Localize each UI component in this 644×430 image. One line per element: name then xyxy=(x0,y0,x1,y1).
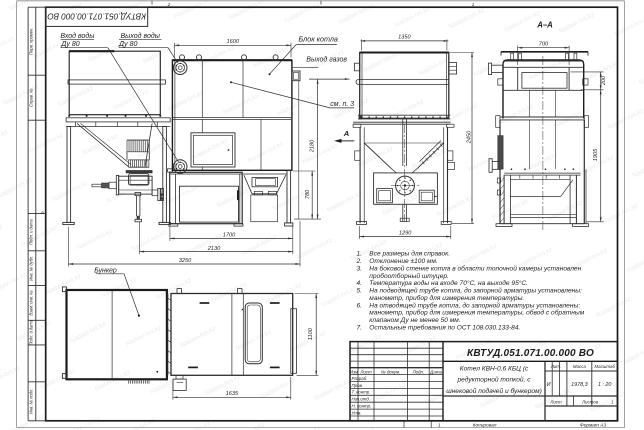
svg-text:Температура воды на входе 70°С: Температура воды на входе 70°С, на выход… xyxy=(369,279,528,287)
svg-text:Листов: Листов xyxy=(581,400,599,405)
svg-text:Лист: Лист xyxy=(359,369,372,374)
svg-text:1: 1 xyxy=(472,2,475,7)
svg-text:Масштаб: Масштаб xyxy=(594,364,615,369)
svg-text:Лист: Лист xyxy=(549,400,562,405)
svg-text:1905: 1905 xyxy=(593,148,599,161)
svg-text:Подп. и дата: Подп. и дата xyxy=(29,219,34,245)
svg-text:Взам. инв. №: Взам. инв. № xyxy=(29,290,34,316)
svg-text:1100: 1100 xyxy=(308,327,314,340)
svg-text:Блок котла: Блок котла xyxy=(299,35,338,44)
svg-text:пробоотборный штуцер.: пробоотборный штуцер. xyxy=(369,272,449,280)
svg-text:Н. контр.: Н. контр. xyxy=(352,404,372,409)
svg-text:1635: 1635 xyxy=(226,391,239,397)
svg-text:Ду 80: Ду 80 xyxy=(60,41,79,48)
svg-text:Вход воды: Вход воды xyxy=(60,32,95,40)
svg-text:А–А: А–А xyxy=(536,21,553,30)
svg-text:Дата: Дата xyxy=(429,369,442,374)
svg-text:КВТУД.051.071.00.000 ВО: КВТУД.051.071.00.000 ВО xyxy=(47,12,146,21)
svg-text:2.: 2. xyxy=(356,258,363,265)
svg-text:А: А xyxy=(40,210,44,215)
svg-text:редукторной топкой, с: редукторной топкой, с xyxy=(457,376,532,384)
svg-text:Справ. №: Справ. № xyxy=(29,88,34,107)
svg-text:Лит.: Лит. xyxy=(550,364,561,369)
svg-text:1978,3: 1978,3 xyxy=(571,382,588,388)
svg-text:Утв.: Утв. xyxy=(352,410,362,415)
svg-text:Выход воды: Выход воды xyxy=(121,32,161,40)
svg-text:Выход газов: Выход газов xyxy=(306,56,347,64)
svg-text:1: 1 xyxy=(438,422,441,427)
svg-text:Разраб.: Разраб. xyxy=(352,376,368,381)
svg-text:На боковой стенке котла в обла: На боковой стенке котла в области топочн… xyxy=(369,264,581,272)
svg-text:2130: 2130 xyxy=(207,246,221,252)
svg-text:2180: 2180 xyxy=(310,139,316,153)
svg-text:Т. контр.: Т. контр. xyxy=(352,390,371,395)
svg-text:Перв. примен.: Перв. примен. xyxy=(29,28,34,55)
svg-text:Изм: Изм xyxy=(350,369,358,374)
svg-text:1290: 1290 xyxy=(399,230,412,236)
svg-text:1.: 1. xyxy=(357,251,363,258)
svg-text:клапаном Ду не менее 50 мм.: клапаном Ду не менее 50 мм. xyxy=(369,317,461,324)
svg-text:780: 780 xyxy=(305,189,311,199)
svg-text:Бункер: Бункер xyxy=(94,267,117,274)
svg-text:Нач.отд.: Нач.отд. xyxy=(352,397,371,402)
svg-text:А: А xyxy=(343,129,349,138)
svg-text:2450: 2450 xyxy=(467,130,473,144)
svg-text:Масса: Масса xyxy=(573,364,587,369)
svg-text:Ду 80: Ду 80 xyxy=(118,41,137,48)
svg-text:Остальные требования по ОСТ 10: Остальные требования по ОСТ 108.030.133-… xyxy=(369,324,520,332)
svg-text:1350: 1350 xyxy=(398,35,411,41)
svg-text:манометр, прибор для измерения: манометр, прибор для измерения температу… xyxy=(369,309,584,317)
svg-text:3250: 3250 xyxy=(179,258,192,264)
svg-text:На подводящей трубе котла, до: На подводящей трубе котла, до запорной а… xyxy=(369,287,582,295)
svg-text:5.: 5. xyxy=(357,288,363,295)
svg-text:200: 200 xyxy=(601,75,607,86)
svg-text:1600: 1600 xyxy=(227,39,240,45)
svg-text:И: И xyxy=(547,382,551,388)
svg-text:Отклонение ±100 мм.: Отклонение ±100 мм. xyxy=(369,258,438,265)
svg-text:4.: 4. xyxy=(357,280,363,287)
svg-text:6.: 6. xyxy=(357,302,363,309)
svg-text:Котел КВН-0,6 КБЦ (с: Котел КВН-0,6 КБЦ (с xyxy=(460,365,529,372)
svg-text:КВТУД.051.071.00.000 ВО: КВТУД.051.071.00.000 ВО xyxy=(467,348,594,359)
svg-text:шнековой подачей и бункером): шнековой подачей и бункером) xyxy=(446,387,542,395)
svg-text:Подп.: Подп. xyxy=(412,369,424,374)
svg-text:1700: 1700 xyxy=(223,233,236,239)
svg-text:Формат А3: Формат А3 xyxy=(580,422,607,428)
svg-text:Инв. № дубл.: Инв. № дубл. xyxy=(29,256,34,281)
svg-text:Пров.: Пров. xyxy=(352,383,364,388)
svg-text:Копировал: Копировал xyxy=(473,422,497,428)
svg-text:манометр, прибор для измерения: манометр, прибор для измерения температу… xyxy=(369,294,524,302)
svg-text:Все размеры для справок.: Все размеры для справок. xyxy=(369,250,450,258)
svg-text:700: 700 xyxy=(539,41,549,47)
svg-text:3.: 3. xyxy=(357,265,363,272)
svg-text:Подп. и дата: Подп. и дата xyxy=(29,319,34,345)
svg-text:1 : 20: 1 : 20 xyxy=(598,382,612,388)
svg-text:№ докум.: № докум. xyxy=(381,369,400,374)
svg-text:На отводящей трубе котла, до з: На отводящей трубе котла, до запорной ар… xyxy=(369,301,580,309)
svg-text:7.: 7. xyxy=(357,325,363,332)
svg-text:см. п. 3: см. п. 3 xyxy=(330,101,354,108)
svg-text:Инв. № подл.: Инв. № подл. xyxy=(29,389,34,414)
